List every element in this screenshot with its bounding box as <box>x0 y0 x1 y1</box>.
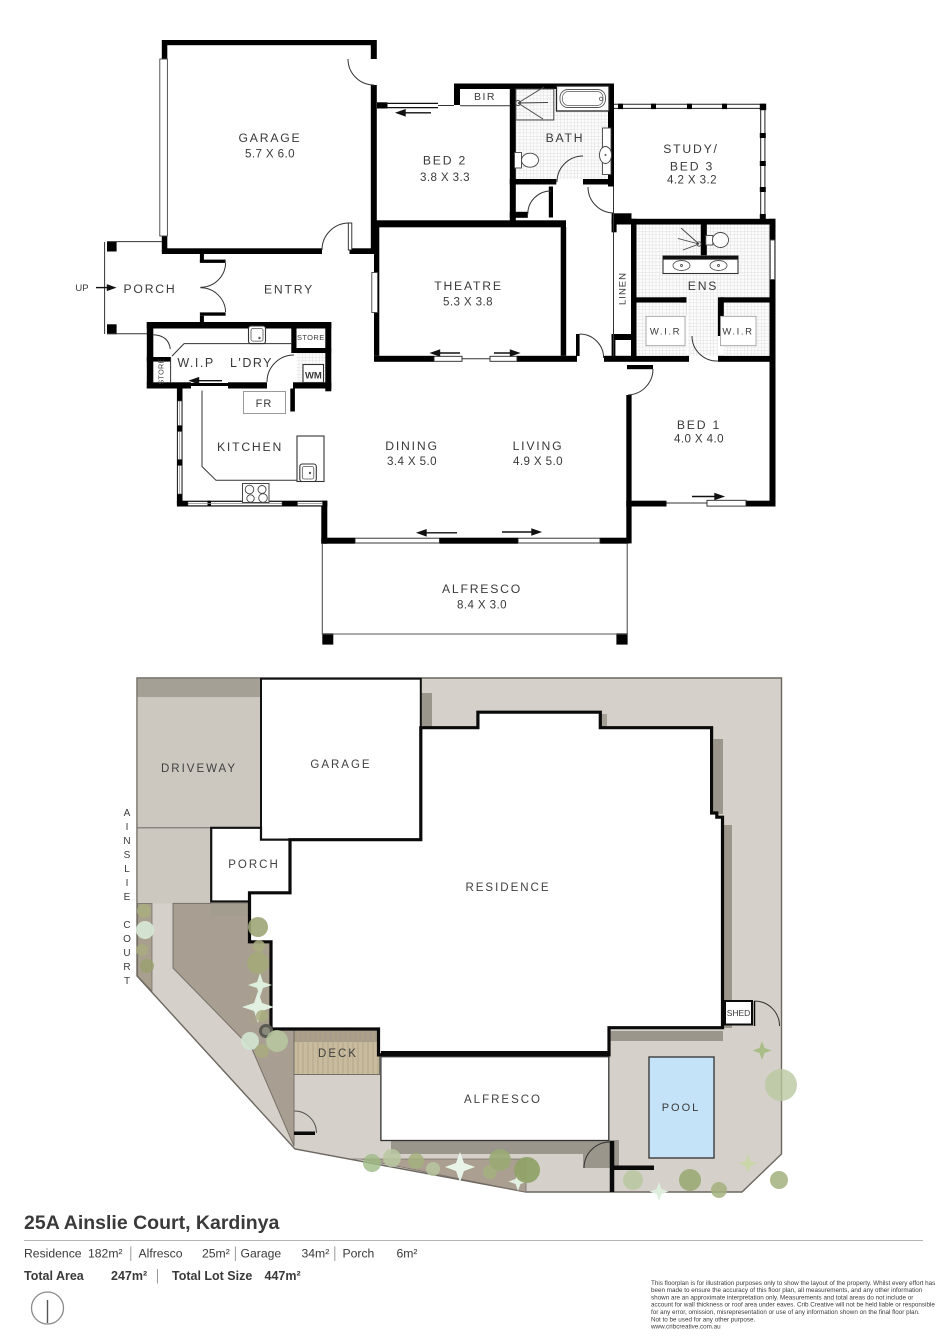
svg-text:account for wall thickness or: account for wall thickness or roof area … <box>651 1302 935 1309</box>
svg-text:34m²: 34m² <box>302 1247 330 1261</box>
svg-text:LIVING: LIVING <box>513 439 564 453</box>
svg-text:DRIVEWAY: DRIVEWAY <box>161 763 237 775</box>
svg-text:ALFRESCO: ALFRESCO <box>464 1094 542 1106</box>
svg-text:C: C <box>123 920 130 931</box>
svg-text:STORE: STORE <box>297 333 325 342</box>
svg-text:R: R <box>123 962 130 973</box>
svg-text:8.4 X 3.0: 8.4 X 3.0 <box>457 599 507 612</box>
svg-text:GARAGE: GARAGE <box>310 759 371 771</box>
svg-text:T: T <box>124 976 130 987</box>
svg-text:FR: FR <box>256 398 273 410</box>
svg-text:5.3 X 3.8: 5.3 X 3.8 <box>443 296 493 309</box>
svg-text:BIR: BIR <box>474 91 496 103</box>
svg-text:A: A <box>124 808 131 819</box>
svg-text:LINEN: LINEN <box>618 272 629 305</box>
svg-text:5.7 X 6.0: 5.7 X 6.0 <box>245 148 295 161</box>
svg-text:3.8 X 3.3: 3.8 X 3.3 <box>420 171 470 184</box>
svg-text:Residence: Residence <box>24 1247 82 1261</box>
svg-text:ALFRESCO: ALFRESCO <box>442 582 522 596</box>
svg-text:ENS: ENS <box>688 279 718 293</box>
svg-text:UP: UP <box>75 283 88 294</box>
svg-text:been made to ensure the accura: been made to ensure the accuracy of this… <box>651 1287 923 1294</box>
svg-text:4.9 X 5.0: 4.9 X 5.0 <box>513 455 563 468</box>
svg-text:www.cribcreative.com.au: www.cribcreative.com.au <box>650 1324 721 1331</box>
svg-text:KITCHEN: KITCHEN <box>217 440 283 454</box>
svg-text:6m²: 6m² <box>397 1247 418 1261</box>
svg-text:Garage: Garage <box>241 1247 282 1261</box>
svg-text:This floorplan is for illustra: This floorplan is for illustration purpo… <box>651 1280 935 1287</box>
svg-text:PORCH: PORCH <box>123 282 176 296</box>
svg-text:Porch: Porch <box>343 1247 375 1261</box>
svg-text:3.4 X 5.0: 3.4 X 5.0 <box>387 455 437 468</box>
svg-text:E: E <box>124 892 131 903</box>
svg-text:BED 1: BED 1 <box>677 418 721 432</box>
svg-text:4.2 X 3.2: 4.2 X 3.2 <box>667 174 717 187</box>
svg-text:Total Area: Total Area <box>24 1269 85 1283</box>
svg-text:POOL: POOL <box>662 1102 701 1114</box>
svg-text:THEATRE: THEATRE <box>434 279 503 293</box>
svg-text:GARAGE: GARAGE <box>239 131 302 145</box>
svg-text:ENTRY: ENTRY <box>264 283 314 297</box>
svg-text:WM: WM <box>305 371 322 382</box>
svg-text:BATH: BATH <box>546 131 585 145</box>
svg-text:Not to be used for any other p: Not to be used for any other purpose. <box>651 1316 756 1323</box>
svg-text:4.0 X 4.0: 4.0 X 4.0 <box>674 433 724 446</box>
svg-text:S: S <box>124 850 131 861</box>
svg-text:W.I.R: W.I.R <box>650 327 681 338</box>
svg-text:RESIDENCE: RESIDENCE <box>465 882 550 894</box>
svg-text:25A Ainslie Court, Kardinya: 25A Ainslie Court, Kardinya <box>24 1212 280 1234</box>
svg-text:L'DRY: L'DRY <box>230 356 273 370</box>
svg-text:DECK: DECK <box>318 1048 358 1060</box>
svg-text:Total Lot Size: Total Lot Size <box>172 1269 252 1283</box>
svg-text:N: N <box>123 836 130 847</box>
svg-text:I: I <box>126 878 129 889</box>
svg-text:SHED: SHED <box>727 1008 751 1018</box>
svg-text:BED 2: BED 2 <box>423 154 467 168</box>
svg-text:O: O <box>123 934 131 945</box>
svg-text:STUDY/: STUDY/ <box>663 142 719 156</box>
svg-text:for any error, omission, misre: for any error, omission, misrepresentati… <box>651 1309 920 1316</box>
svg-text:25m²: 25m² <box>202 1247 230 1261</box>
svg-text:I: I <box>126 822 129 833</box>
svg-text:182m²: 182m² <box>88 1247 123 1261</box>
svg-text:247m²: 247m² <box>111 1269 147 1283</box>
svg-text:L: L <box>124 864 130 875</box>
svg-text:BED 3: BED 3 <box>670 160 714 174</box>
svg-text:shown are an approximate inter: shown are an approximate interpretation … <box>651 1294 913 1301</box>
svg-text:U: U <box>123 948 130 959</box>
svg-text:W.I.P: W.I.P <box>177 356 214 370</box>
svg-text:447m²: 447m² <box>265 1269 301 1283</box>
svg-text:W.I.R: W.I.R <box>722 327 753 338</box>
svg-text:DINING: DINING <box>385 439 438 453</box>
svg-text:STORE: STORE <box>157 358 166 384</box>
svg-text:Alfresco: Alfresco <box>139 1247 183 1261</box>
svg-text:PORCH: PORCH <box>228 859 280 871</box>
